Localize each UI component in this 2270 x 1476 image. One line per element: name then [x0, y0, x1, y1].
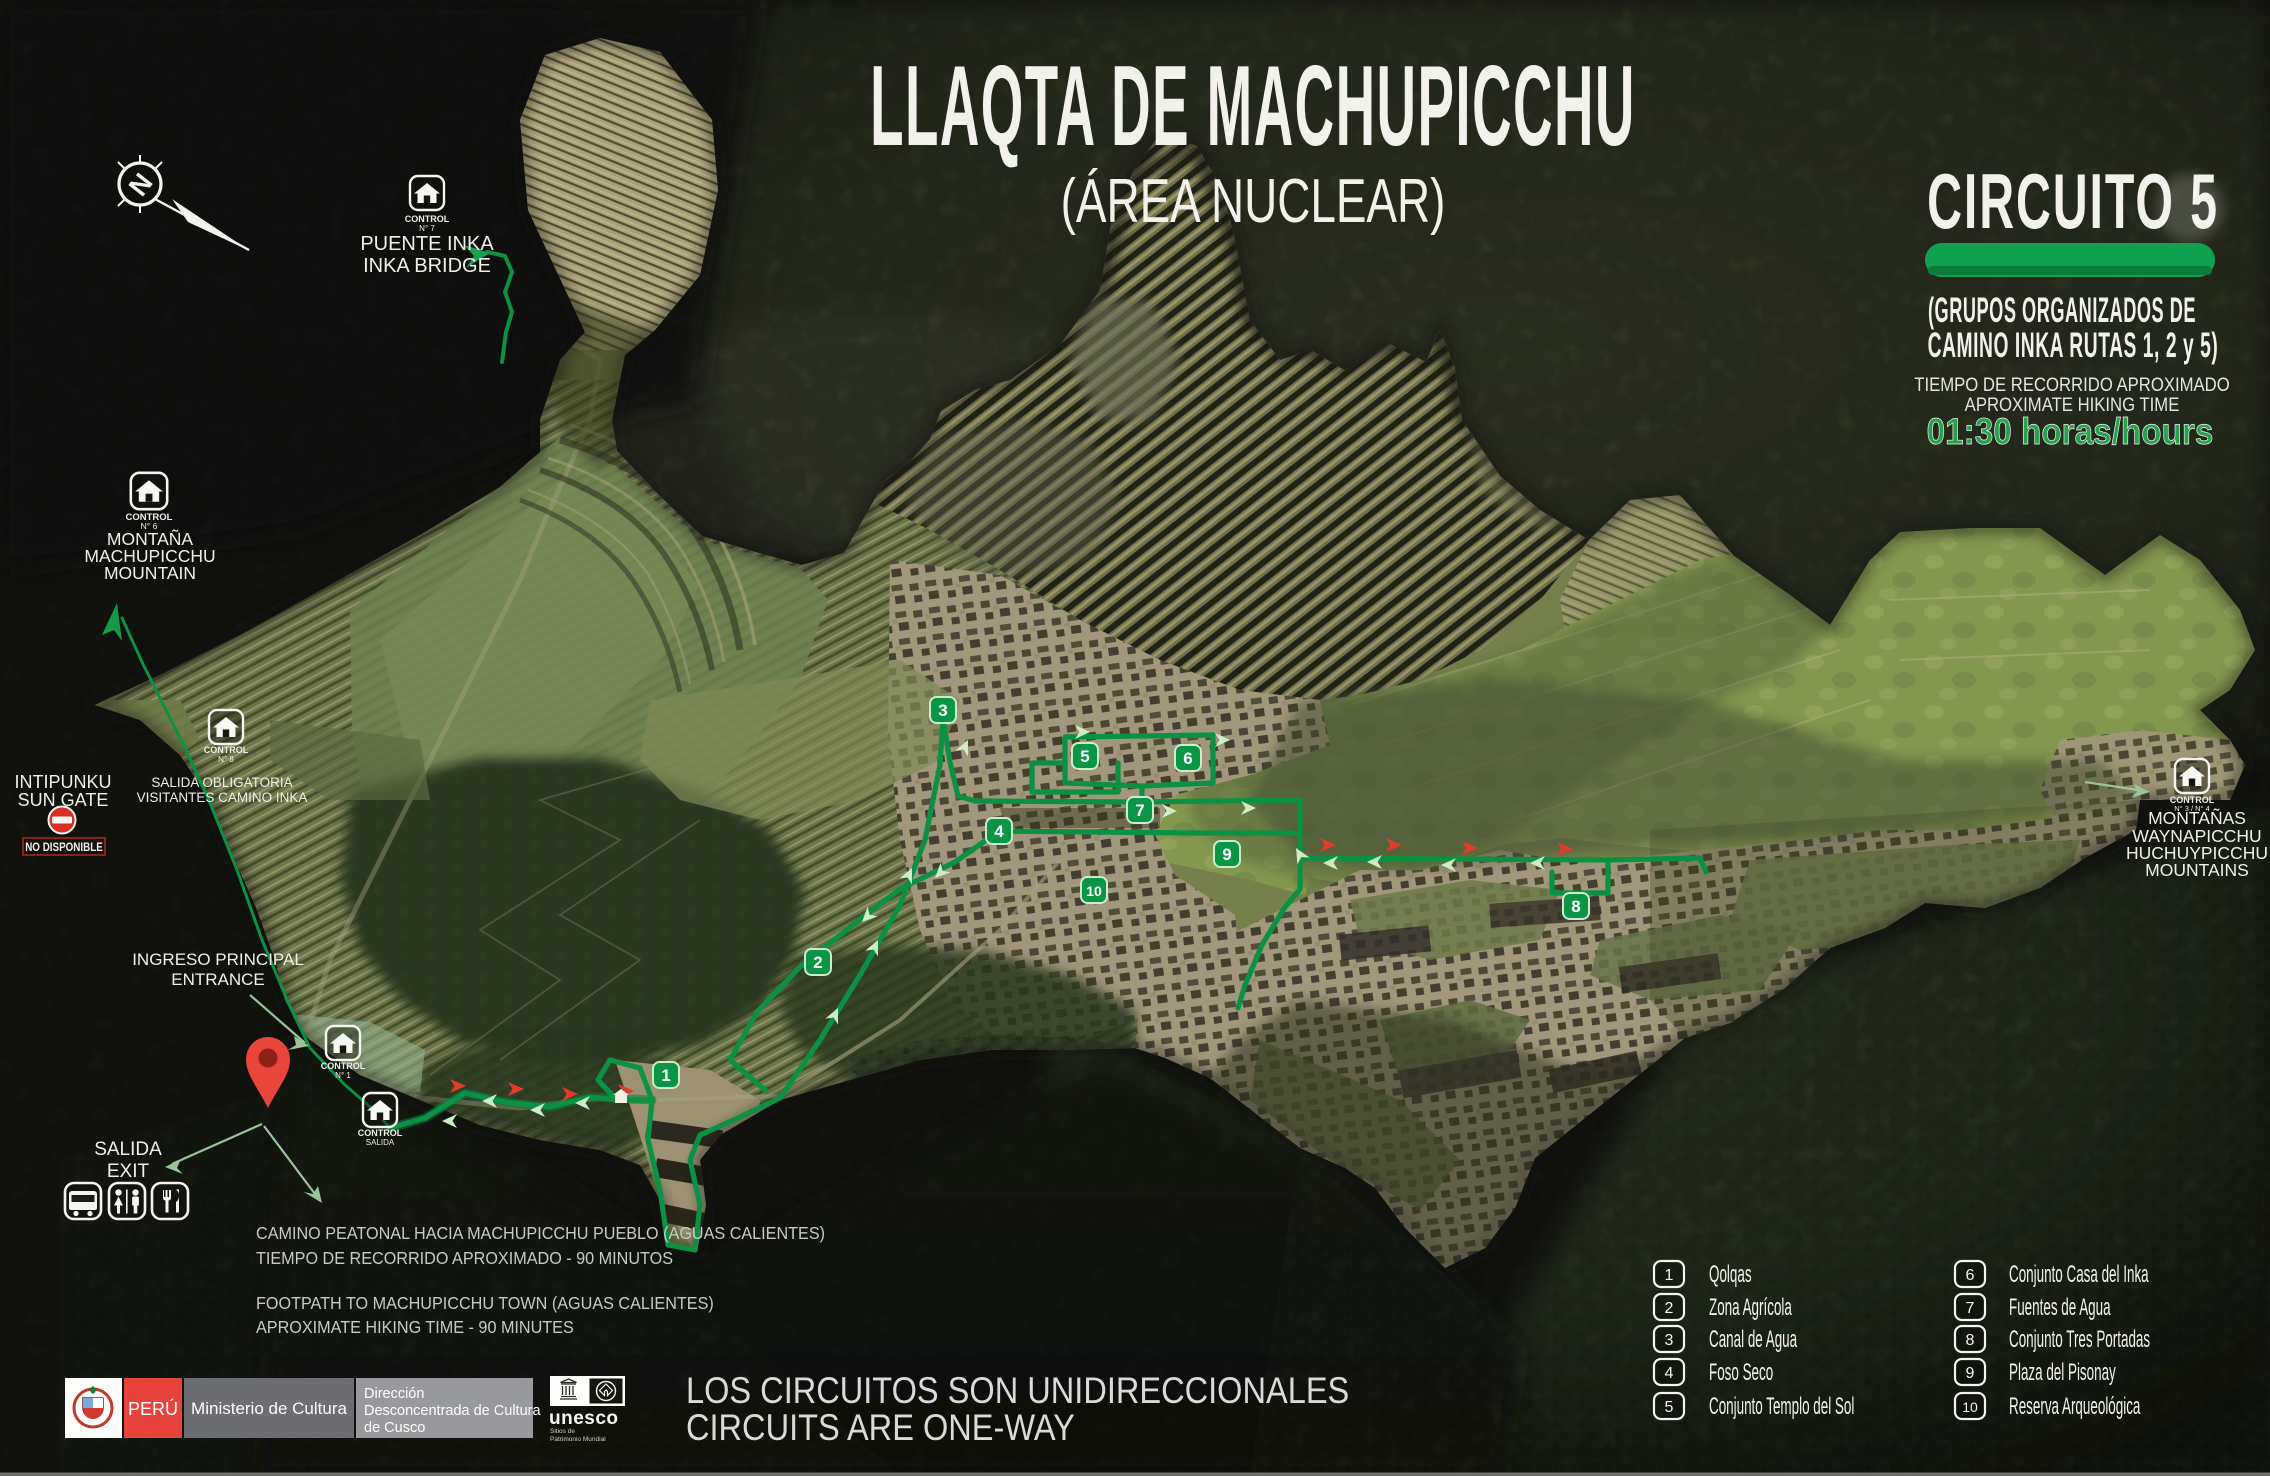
- svg-text:LLAQTA DE MACHUPICCHU: LLAQTA DE MACHUPICCHU: [870, 42, 1636, 169]
- svg-text:PUENTE INKA: PUENTE INKA: [360, 233, 494, 255]
- svg-text:LOS CIRCUITOS SON UNIDIRECCION: LOS CIRCUITOS SON UNIDIRECCIONALES: [686, 1370, 1349, 1411]
- svg-text:6: 6: [1966, 1267, 1975, 1284]
- svg-text:INKA BRIDGE: INKA BRIDGE: [363, 255, 491, 277]
- svg-text:INGRESO PRINCIPAL: INGRESO PRINCIPAL: [132, 950, 304, 969]
- svg-text:5: 5: [1080, 747, 1089, 766]
- svg-text:Desconcentrada de Cultura: Desconcentrada de Cultura: [364, 1403, 541, 1419]
- svg-text:Dirección: Dirección: [364, 1386, 424, 1402]
- svg-text:01:30 horas/hours: 01:30 horas/hours: [1927, 411, 2214, 452]
- svg-text:4: 4: [1665, 1365, 1674, 1382]
- svg-text:7: 7: [1135, 801, 1144, 820]
- svg-text:EXIT: EXIT: [107, 1161, 150, 1182]
- svg-text:9: 9: [1222, 845, 1231, 864]
- svg-text:unesco: unesco: [549, 1408, 619, 1429]
- svg-text:Qolqas: Qolqas: [1709, 1261, 1752, 1288]
- svg-text:APROXIMATE HIKING TIME - 90 MI: APROXIMATE HIKING TIME - 90 MINUTES: [256, 1317, 574, 1337]
- svg-text:N° 7: N° 7: [419, 224, 435, 233]
- svg-text:FOOTPATH TO MACHUPICCHU TOWN (: FOOTPATH TO MACHUPICCHU TOWN (AGUAS CALI…: [256, 1293, 714, 1313]
- svg-text:MONTAÑAS: MONTAÑAS: [2148, 807, 2246, 828]
- svg-text:CONTROL: CONTROL: [204, 745, 249, 755]
- svg-text:N° 8: N° 8: [218, 755, 234, 764]
- svg-text:de Cusco: de Cusco: [364, 1420, 425, 1436]
- svg-text:(ÁREA NUCLEAR): (ÁREA NUCLEAR): [1061, 166, 1446, 235]
- svg-text:3: 3: [938, 701, 947, 720]
- svg-text:CAMINO PEATONAL HACIA MACHUPIC: CAMINO PEATONAL HACIA MACHUPICCHU PUEBLO…: [256, 1223, 825, 1243]
- svg-text:4: 4: [994, 822, 1004, 841]
- svg-text:3: 3: [1665, 1332, 1674, 1349]
- svg-text:ENTRANCE: ENTRANCE: [171, 970, 265, 989]
- svg-text:2: 2: [813, 953, 822, 972]
- svg-text:INTIPUNKU: INTIPUNKU: [14, 772, 111, 792]
- svg-text:Fuentes de Agua: Fuentes de Agua: [2009, 1294, 2111, 1321]
- svg-text:SALIDA OBLIGATORIA: SALIDA OBLIGATORIA: [151, 775, 292, 790]
- svg-text:CONTROL: CONTROL: [358, 1128, 403, 1138]
- svg-text:9: 9: [1966, 1365, 1975, 1382]
- svg-text:2: 2: [1665, 1300, 1674, 1317]
- svg-text:TIEMPO DE RECORRIDO APROXIMADO: TIEMPO DE RECORRIDO APROXIMADO: [1914, 374, 2230, 395]
- svg-text:Conjunto Tres Portadas: Conjunto Tres Portadas: [2009, 1326, 2150, 1353]
- svg-text:CONTROL: CONTROL: [321, 1061, 366, 1071]
- svg-text:MOUNTAIN: MOUNTAIN: [104, 563, 196, 583]
- svg-text:8: 8: [1966, 1332, 1975, 1349]
- svg-text:8: 8: [1571, 897, 1580, 916]
- svg-text:NO DISPONIBLE: NO DISPONIBLE: [25, 841, 103, 854]
- svg-text:Foso Seco: Foso Seco: [1709, 1359, 1773, 1386]
- svg-text:PERÚ: PERÚ: [128, 1398, 178, 1419]
- svg-text:N° 1: N° 1: [335, 1071, 351, 1080]
- svg-text:5: 5: [1665, 1399, 1674, 1416]
- svg-text:MOUNTAINS: MOUNTAINS: [2145, 860, 2249, 880]
- svg-text:Conjunto Casa del Inka: Conjunto Casa del Inka: [2009, 1261, 2149, 1288]
- svg-text:CONTROL: CONTROL: [405, 214, 450, 224]
- svg-text:Conjunto Templo del Sol: Conjunto Templo del Sol: [1709, 1393, 1854, 1420]
- svg-text:Reserva Arqueológica: Reserva Arqueológica: [2009, 1393, 2141, 1420]
- svg-text:TIEMPO DE RECORRIDO APROXIMADO: TIEMPO DE RECORRIDO APROXIMADO - 90 MINU…: [256, 1248, 673, 1268]
- svg-text:Zona Agrícola: Zona Agrícola: [1709, 1294, 1792, 1321]
- svg-text:Plaza del Pisonay: Plaza del Pisonay: [2009, 1359, 2116, 1386]
- svg-text:6: 6: [1183, 749, 1192, 768]
- svg-text:SUN GATE: SUN GATE: [18, 790, 109, 810]
- svg-text:Sitios de: Sitios de: [550, 1428, 575, 1435]
- svg-text:SALIDA: SALIDA: [94, 1139, 162, 1160]
- svg-text:SALIDA: SALIDA: [366, 1138, 395, 1147]
- svg-text:1: 1: [661, 1066, 670, 1085]
- svg-text:CIRCUITS ARE ONE-WAY: CIRCUITS ARE ONE-WAY: [686, 1407, 1075, 1448]
- svg-text:10: 10: [1086, 883, 1102, 899]
- svg-text:(GRUPOS ORGANIZADOS DE: (GRUPOS ORGANIZADOS DE: [1928, 291, 2196, 330]
- svg-text:1: 1: [1665, 1267, 1674, 1284]
- svg-text:Canal de Agua: Canal de Agua: [1709, 1326, 1797, 1353]
- svg-text:Patrimonio Mundial: Patrimonio Mundial: [550, 1436, 606, 1443]
- svg-text:CAMINO INKA RUTAS 1, 2 y 5): CAMINO INKA RUTAS 1, 2 y 5): [1928, 325, 2219, 365]
- svg-text:10: 10: [1962, 1399, 1978, 1415]
- svg-text:VISITANTES CAMINO INKA: VISITANTES CAMINO INKA: [137, 790, 308, 805]
- svg-text:7: 7: [1966, 1300, 1975, 1317]
- svg-text:Ministerio de Cultura: Ministerio de Cultura: [191, 1399, 347, 1418]
